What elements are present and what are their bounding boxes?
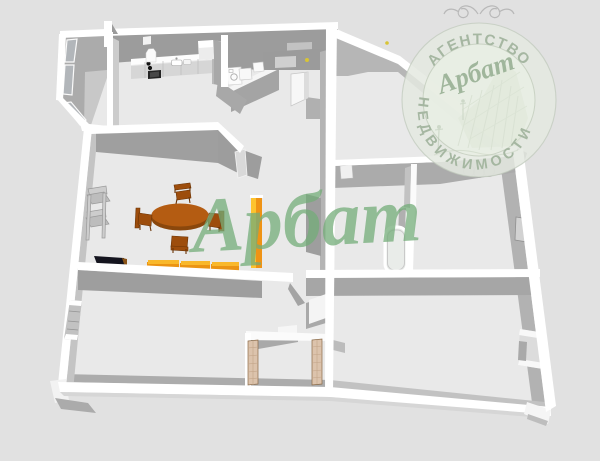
svg-text:Арбат: Арбат — [184, 170, 423, 269]
